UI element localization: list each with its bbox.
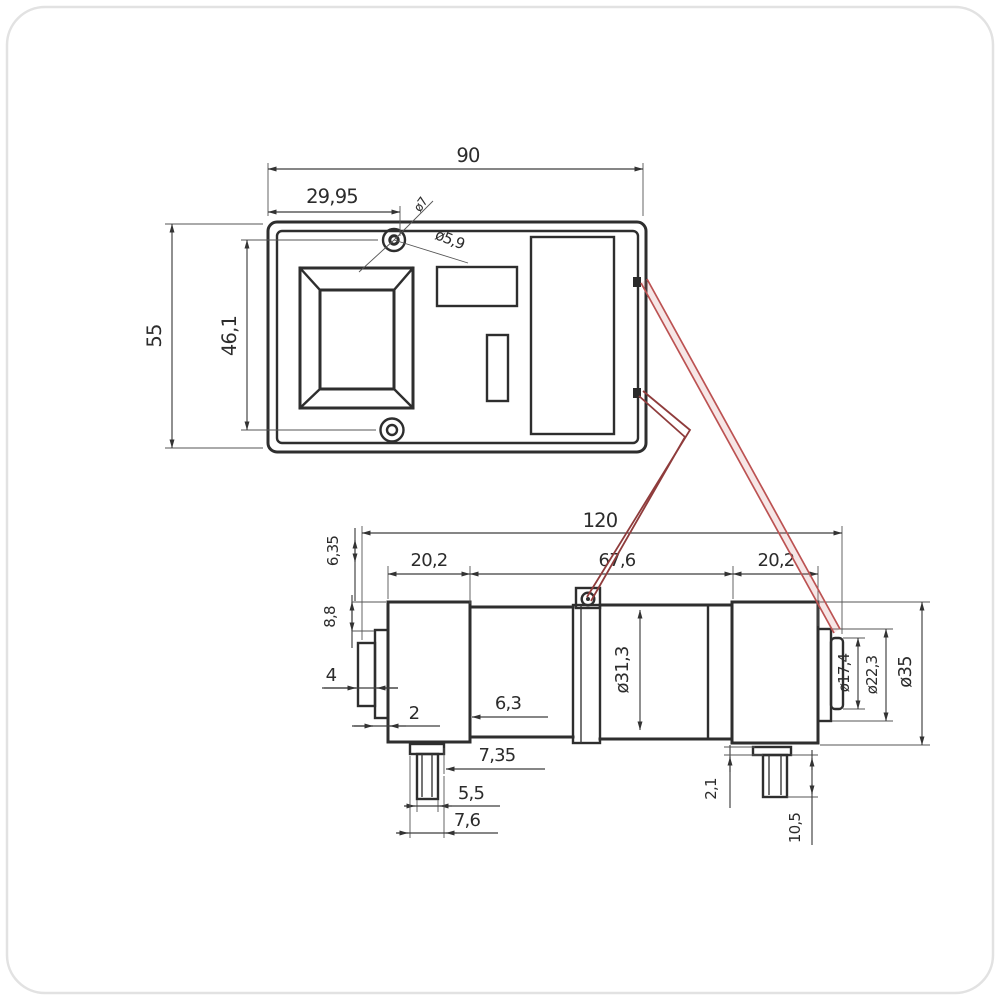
- label-hole-dia: ø5,9: [433, 226, 468, 254]
- dim-boss: 6,3: [472, 693, 548, 717]
- technical-drawing-page: 90 29,95 55 46,1 ø7 ø5,9: [0, 0, 1000, 1000]
- dim-pin-length: 10,5: [786, 750, 818, 845]
- dim-terminal-height: 6,35: [324, 528, 355, 601]
- dim-body-length-label: 120: [583, 509, 618, 532]
- dim-left-section: 20,2: [388, 550, 470, 604]
- dim-middle-section: 67,6: [470, 550, 733, 574]
- beveled-window: [300, 268, 413, 408]
- dim-body-dia: ø31,3: [612, 610, 640, 730]
- right-end-block: [732, 602, 818, 743]
- left-terminal-step: [375, 630, 388, 718]
- mounting-screw-bottom: [381, 419, 404, 442]
- top-view: 90 29,95 55 46,1 ø7 ø5,9: [143, 144, 646, 452]
- cutout-slot: [487, 335, 508, 401]
- dim-collar-dia-label: ø22,3: [863, 655, 881, 694]
- dim-shoulder: 8,8: [321, 595, 386, 648]
- dim-plate-height-label: 55: [143, 324, 166, 347]
- left-end-block: [388, 602, 470, 742]
- connector-band: [641, 279, 840, 633]
- dim-hole-offset: 29,95: [268, 185, 400, 212]
- dim-tip-dia-label: ø17,4: [835, 653, 853, 692]
- dim-plate-height: 55: [143, 224, 263, 448]
- dim-boss-label: 6,3: [495, 693, 522, 714]
- plate-inner-outline: [277, 231, 638, 443]
- highlight-connectors: [587, 277, 840, 633]
- right-bottom-pin: [753, 747, 791, 797]
- left-bottom-pin: [410, 744, 444, 799]
- dim-left-section-label: 20,2: [411, 550, 448, 571]
- dim-plate-width-label: 90: [456, 144, 480, 167]
- dim-edge-label: 2: [409, 703, 420, 724]
- plate-outer-outline: [268, 222, 646, 452]
- image-frame: [7, 7, 993, 993]
- connector-line-right: [641, 283, 834, 633]
- dim-right-section-label: 20,2: [758, 550, 795, 571]
- dim-step-label: 4: [326, 665, 337, 686]
- dim-cap-dia-label: ø35: [895, 656, 916, 688]
- left-terminal-step-small: [358, 643, 375, 706]
- dim-terminal-height-label: 6,35: [324, 536, 342, 566]
- dim-body-dia-label: ø31,3: [612, 646, 633, 693]
- dim-screw-spacing-label: 46,1: [218, 316, 241, 356]
- dim-pin-offset: 7,35: [444, 745, 545, 774]
- dim-flange-thickness-label: 2,1: [702, 778, 720, 800]
- dim-tip-dia: ø17,4: [835, 638, 865, 709]
- dim-pin-flange-label: 7,6: [454, 810, 481, 831]
- dim-right-section: 20,2: [733, 550, 818, 626]
- drawing-canvas: 90 29,95 55 46,1 ø7 ø5,9: [0, 0, 1000, 1000]
- cutout-terminal-window: [531, 237, 614, 434]
- dim-pin-offset-label: 7,35: [479, 745, 516, 766]
- cutout-switch: [437, 267, 517, 306]
- dim-shoulder-label: 8,8: [321, 606, 339, 628]
- dim-pin-length-label: 10,5: [786, 813, 804, 843]
- right-step-collar: [818, 629, 831, 721]
- center-collar: [573, 588, 600, 743]
- dim-hole-offset-label: 29,95: [306, 185, 358, 208]
- side-view: 120 20,2 67,6 20,2 6,35: [321, 509, 930, 845]
- label-screw-dia: ø7: [410, 194, 430, 214]
- connector-anchor-top: [633, 277, 641, 287]
- dim-pin-width-label: 5,5: [458, 783, 484, 804]
- dim-pin-width: 5,5: [404, 783, 500, 812]
